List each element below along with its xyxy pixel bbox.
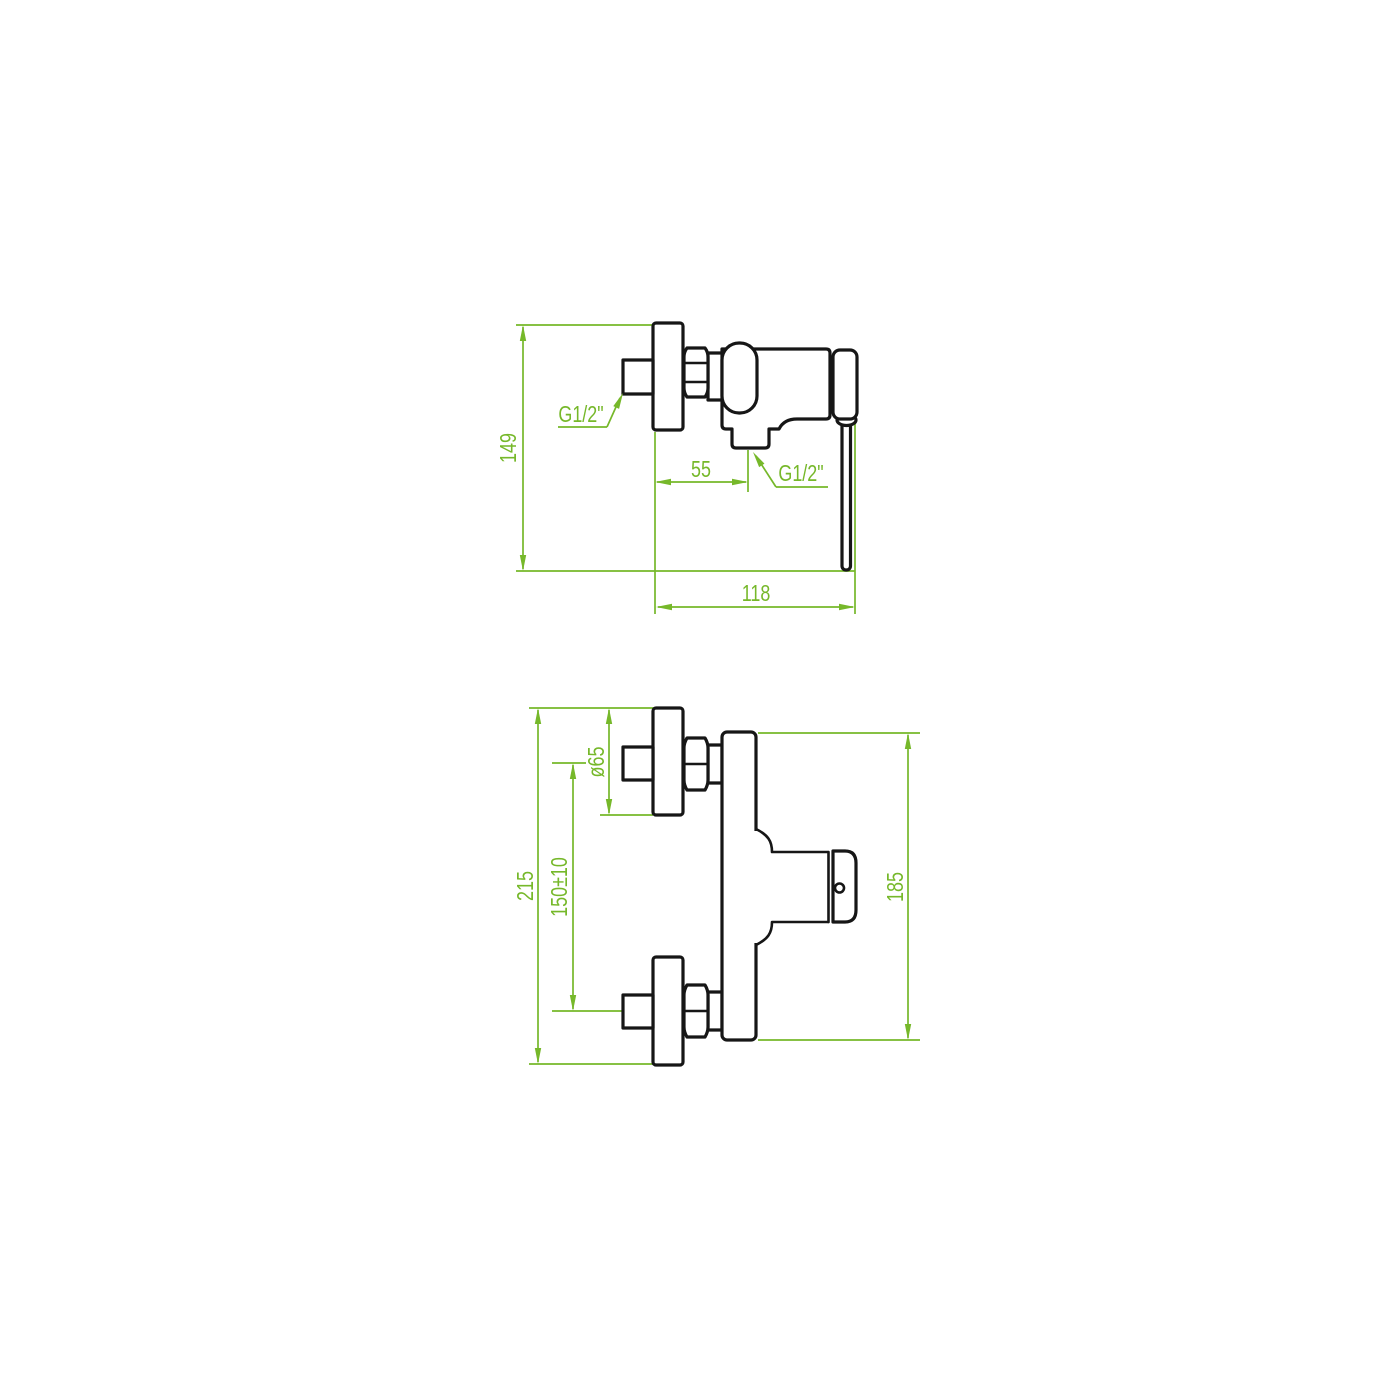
front-top-collar — [708, 745, 722, 783]
front-dim-diameter-arrow-up — [606, 708, 612, 724]
front-dim-body-height-arrow-down — [905, 1024, 911, 1040]
side-inlet-pipe — [623, 360, 653, 394]
side-dim-offset-arrow-left — [655, 479, 671, 485]
side-dim-offset-label: 55 — [691, 457, 711, 483]
front-dim-height-arrow-down — [535, 1048, 541, 1064]
side-escutcheon — [653, 323, 683, 430]
side-view: 149 55 118 G1/2" G1/2" — [496, 323, 857, 614]
front-dim-spacing-arrow-down — [570, 995, 576, 1011]
side-hex-nut — [684, 348, 708, 397]
side-dim-depth-arrow-right — [839, 604, 855, 610]
front-dim-height-label: 215 — [513, 871, 539, 901]
side-handle-cap — [833, 350, 857, 419]
side-dim-height-arrow-down — [520, 555, 526, 571]
front-top-escutcheon — [653, 708, 683, 815]
front-bottom-escutcheon — [653, 957, 683, 1065]
front-view: 215 ø65 150±10 185 — [513, 708, 920, 1065]
front-handle-dot — [835, 884, 844, 893]
front-dim-spacing-label: 150±10 — [547, 857, 573, 917]
technical-drawing: 149 55 118 G1/2" G1/2" — [0, 0, 1400, 1400]
side-cartridge-oval — [722, 343, 757, 413]
side-dim-height-arrow-up — [520, 325, 526, 341]
front-bottom-pipe — [623, 995, 653, 1028]
front-dim-body-height-label: 185 — [883, 872, 909, 902]
side-leader-inlet-label: G1/2" — [558, 402, 603, 428]
front-neck-fill — [753, 831, 759, 943]
drawing-canvas: 149 55 118 G1/2" G1/2" — [0, 0, 1400, 1400]
front-bottom-collar — [708, 992, 722, 1030]
front-top-pipe — [623, 747, 653, 780]
front-dim-diameter-label: ø65 — [584, 747, 610, 778]
side-dim-offset-arrow-right — [732, 479, 748, 485]
front-neck-bottom-edge — [756, 922, 828, 945]
side-lever-rod — [842, 418, 851, 570]
front-neck-top-edge — [756, 829, 828, 852]
side-dim-depth-arrow-left — [656, 604, 672, 610]
side-dim-height-label: 149 — [496, 433, 522, 463]
front-dim-body-height-arrow-up — [905, 733, 911, 749]
side-leader-outlet-arrow — [750, 450, 764, 467]
front-dim-diameter-arrow-down — [606, 799, 612, 815]
front-body — [722, 732, 756, 1040]
front-dim-height-arrow-up — [535, 708, 541, 724]
side-dim-depth-label: 118 — [742, 581, 771, 607]
front-dim-spacing-arrow-up — [570, 763, 576, 779]
side-leader-outlet-label: G1/2" — [778, 461, 823, 487]
